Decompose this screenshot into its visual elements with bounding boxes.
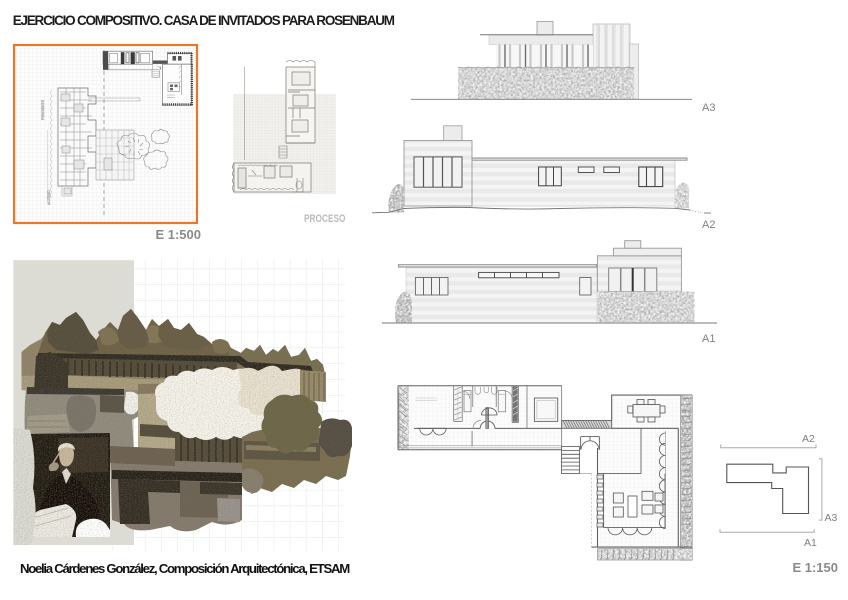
svg-text:ACCESO: ACCESO xyxy=(47,190,51,205)
svg-text:A2: A2 xyxy=(802,433,815,445)
svg-text:A1: A1 xyxy=(702,333,715,345)
svg-text:A3: A3 xyxy=(702,102,715,114)
svg-text:Noelia Cárdenes González, Comp: Noelia Cárdenes González, Composición Ar… xyxy=(20,561,350,576)
svg-text:E 1:500: E 1:500 xyxy=(155,227,201,242)
svg-text:E 1:150: E 1:150 xyxy=(792,560,838,575)
svg-text:A3: A3 xyxy=(825,512,838,524)
svg-text:PENDIENTE: PENDIENTE xyxy=(41,99,45,120)
svg-text:EJERCICIO COMPOSITIVO. CASA DE: EJERCICIO COMPOSITIVO. CASA DE INVITADOS… xyxy=(13,13,395,28)
svg-text:PROCESO: PROCESO xyxy=(304,213,346,225)
svg-text:A1: A1 xyxy=(804,537,817,549)
svg-text:A2: A2 xyxy=(702,219,715,231)
